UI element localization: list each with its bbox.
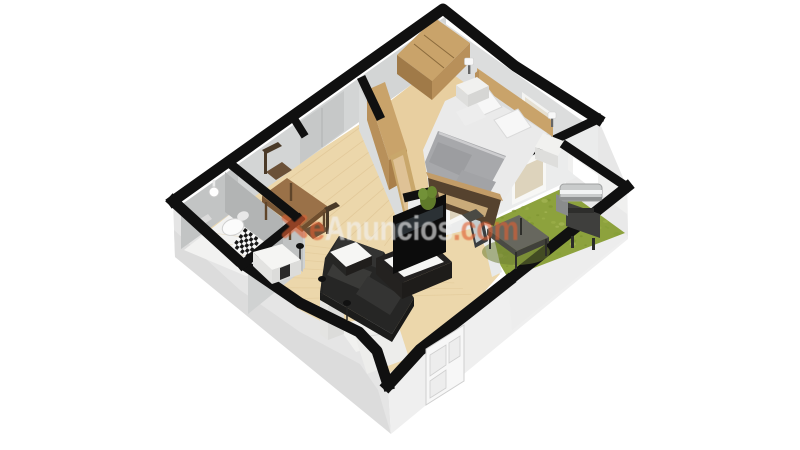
svg-text:eAnuncios.com: eAnuncios.com [309,209,519,248]
